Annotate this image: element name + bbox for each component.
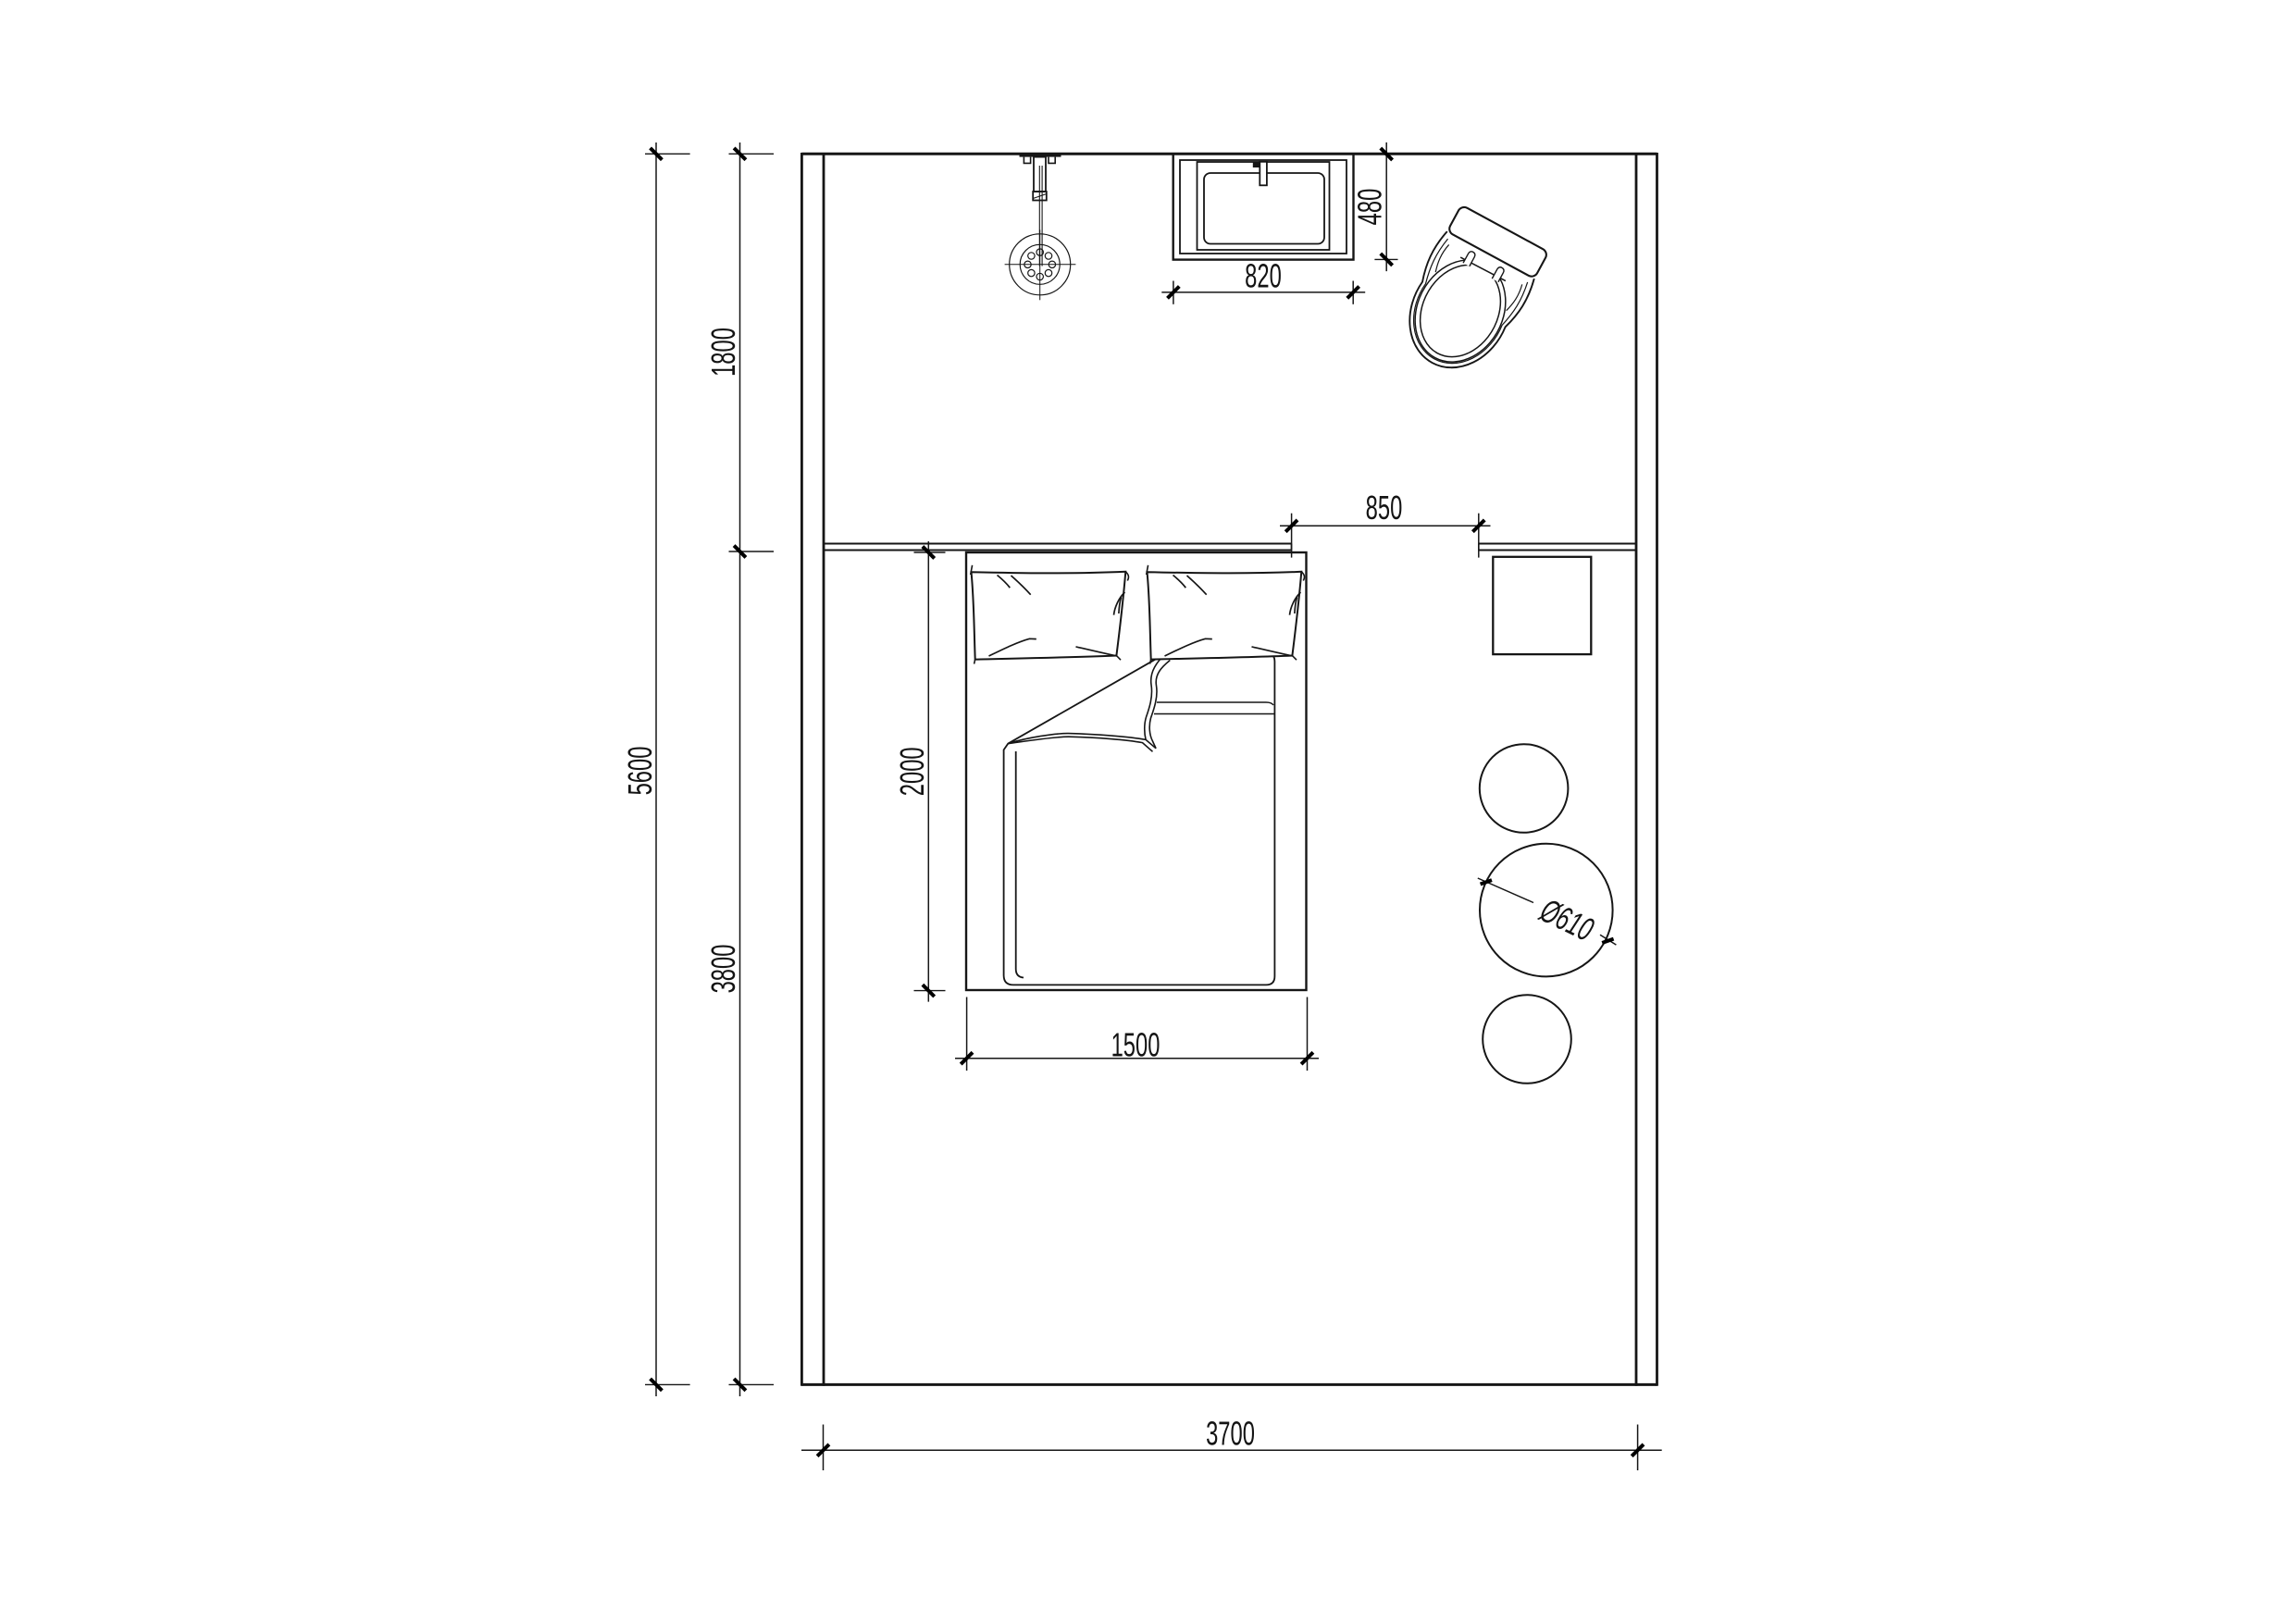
svg-text:820: 820 bbox=[1245, 258, 1282, 295]
svg-text:5600: 5600 bbox=[622, 747, 659, 796]
svg-text:3800: 3800 bbox=[705, 945, 742, 994]
svg-text:850: 850 bbox=[1366, 489, 1403, 527]
svg-text:2000: 2000 bbox=[894, 747, 931, 796]
svg-text:3700: 3700 bbox=[1206, 1416, 1255, 1453]
svg-text:480: 480 bbox=[1352, 189, 1389, 226]
svg-text:1800: 1800 bbox=[705, 328, 742, 377]
svg-text:1500: 1500 bbox=[1111, 1027, 1160, 1064]
